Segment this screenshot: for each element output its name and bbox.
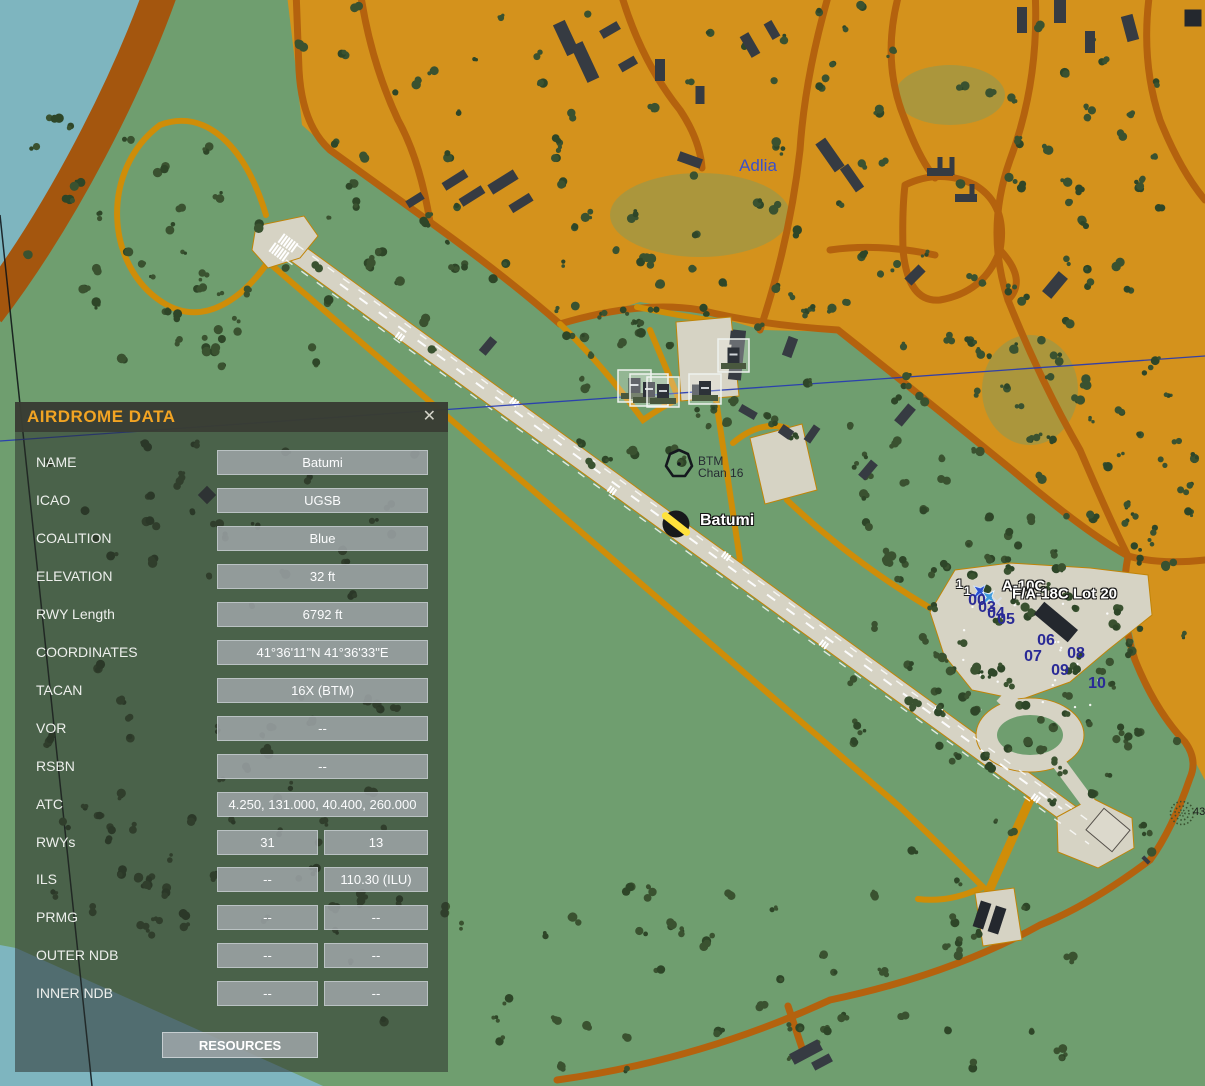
field-label: RWYs: [36, 830, 75, 855]
panel-row: TACAN16X (BTM): [15, 678, 448, 703]
field-value: --: [217, 943, 318, 968]
field-label: ATC: [36, 792, 63, 817]
field-label: NAME: [36, 450, 76, 475]
field-label: TACAN: [36, 678, 82, 703]
field-label: COALITION: [36, 526, 111, 551]
panel-row: INNER NDB----: [15, 981, 448, 1006]
field-label: VOR: [36, 716, 66, 741]
field-value: 16X (BTM): [217, 678, 428, 703]
panel-row: COALITIONBlue: [15, 526, 448, 551]
panel-row: NAMEBatumi: [15, 450, 448, 475]
static-object-icon[interactable]: [718, 339, 749, 372]
panel-row: ELEVATION32 ft: [15, 564, 448, 589]
panel-row: ICAOUGSB: [15, 488, 448, 513]
field-label: ICAO: [36, 488, 70, 513]
static-object-icon[interactable]: [647, 377, 679, 407]
field-value: 110.30 (ILU): [324, 867, 428, 892]
field-value: --: [217, 905, 318, 930]
field-label: RWY Length: [36, 602, 115, 627]
panel-row: OUTER NDB----: [15, 943, 448, 968]
field-label: OUTER NDB: [36, 943, 118, 968]
field-value: 31: [217, 830, 318, 855]
field-label: INNER NDB: [36, 981, 113, 1006]
field-value: --: [217, 867, 318, 892]
panel-row: RWY Length6792 ft: [15, 602, 448, 627]
field-value: UGSB: [217, 488, 428, 513]
panel-row: PRMG----: [15, 905, 448, 930]
panel-row: ILS--110.30 (ILU): [15, 867, 448, 892]
field-value: 41°36'11"N 41°36'33"E: [217, 640, 428, 665]
window-titlebar[interactable]: AIRDROME DATA ✕: [15, 402, 448, 432]
field-value: --: [217, 716, 428, 741]
field-value: --: [324, 943, 428, 968]
field-value: Blue: [217, 526, 428, 551]
panel-row: VOR--: [15, 716, 448, 741]
mission-editor-map-view[interactable]: AdliaBTMChan 16BatumiA-10CF/A-18C Lot 20…: [0, 0, 1205, 1086]
field-value: 4.250, 131.000, 40.400, 260.000: [217, 792, 428, 817]
field-value: Batumi: [217, 450, 428, 475]
panel-row: COORDINATES41°36'11"N 41°36'33"E: [15, 640, 448, 665]
field-value: 6792 ft: [217, 602, 428, 627]
field-value: --: [217, 754, 428, 779]
field-value: --: [217, 981, 318, 1006]
field-label: RSBN: [36, 754, 75, 779]
field-label: ILS: [36, 867, 57, 892]
field-label: ELEVATION: [36, 564, 113, 589]
airdrome-data-window: AIRDROME DATA ✕ NAMEBatumiICAOUGSBCOALIT…: [15, 402, 448, 1072]
panel-row: RSBN--: [15, 754, 448, 779]
field-label: COORDINATES: [36, 640, 138, 665]
field-value: 13: [324, 830, 428, 855]
resources-button[interactable]: RESOURCES: [162, 1032, 318, 1058]
field-label: PRMG: [36, 905, 78, 930]
close-icon[interactable]: ✕: [423, 409, 436, 425]
field-value: --: [324, 981, 428, 1006]
field-value: --: [324, 905, 428, 930]
static-object-icon[interactable]: [689, 374, 721, 404]
window-title: AIRDROME DATA: [27, 407, 175, 427]
field-value: 32 ft: [217, 564, 428, 589]
panel-row: RWYs3113: [15, 830, 448, 855]
panel-row: ATC4.250, 131.000, 40.400, 260.000: [15, 792, 448, 817]
